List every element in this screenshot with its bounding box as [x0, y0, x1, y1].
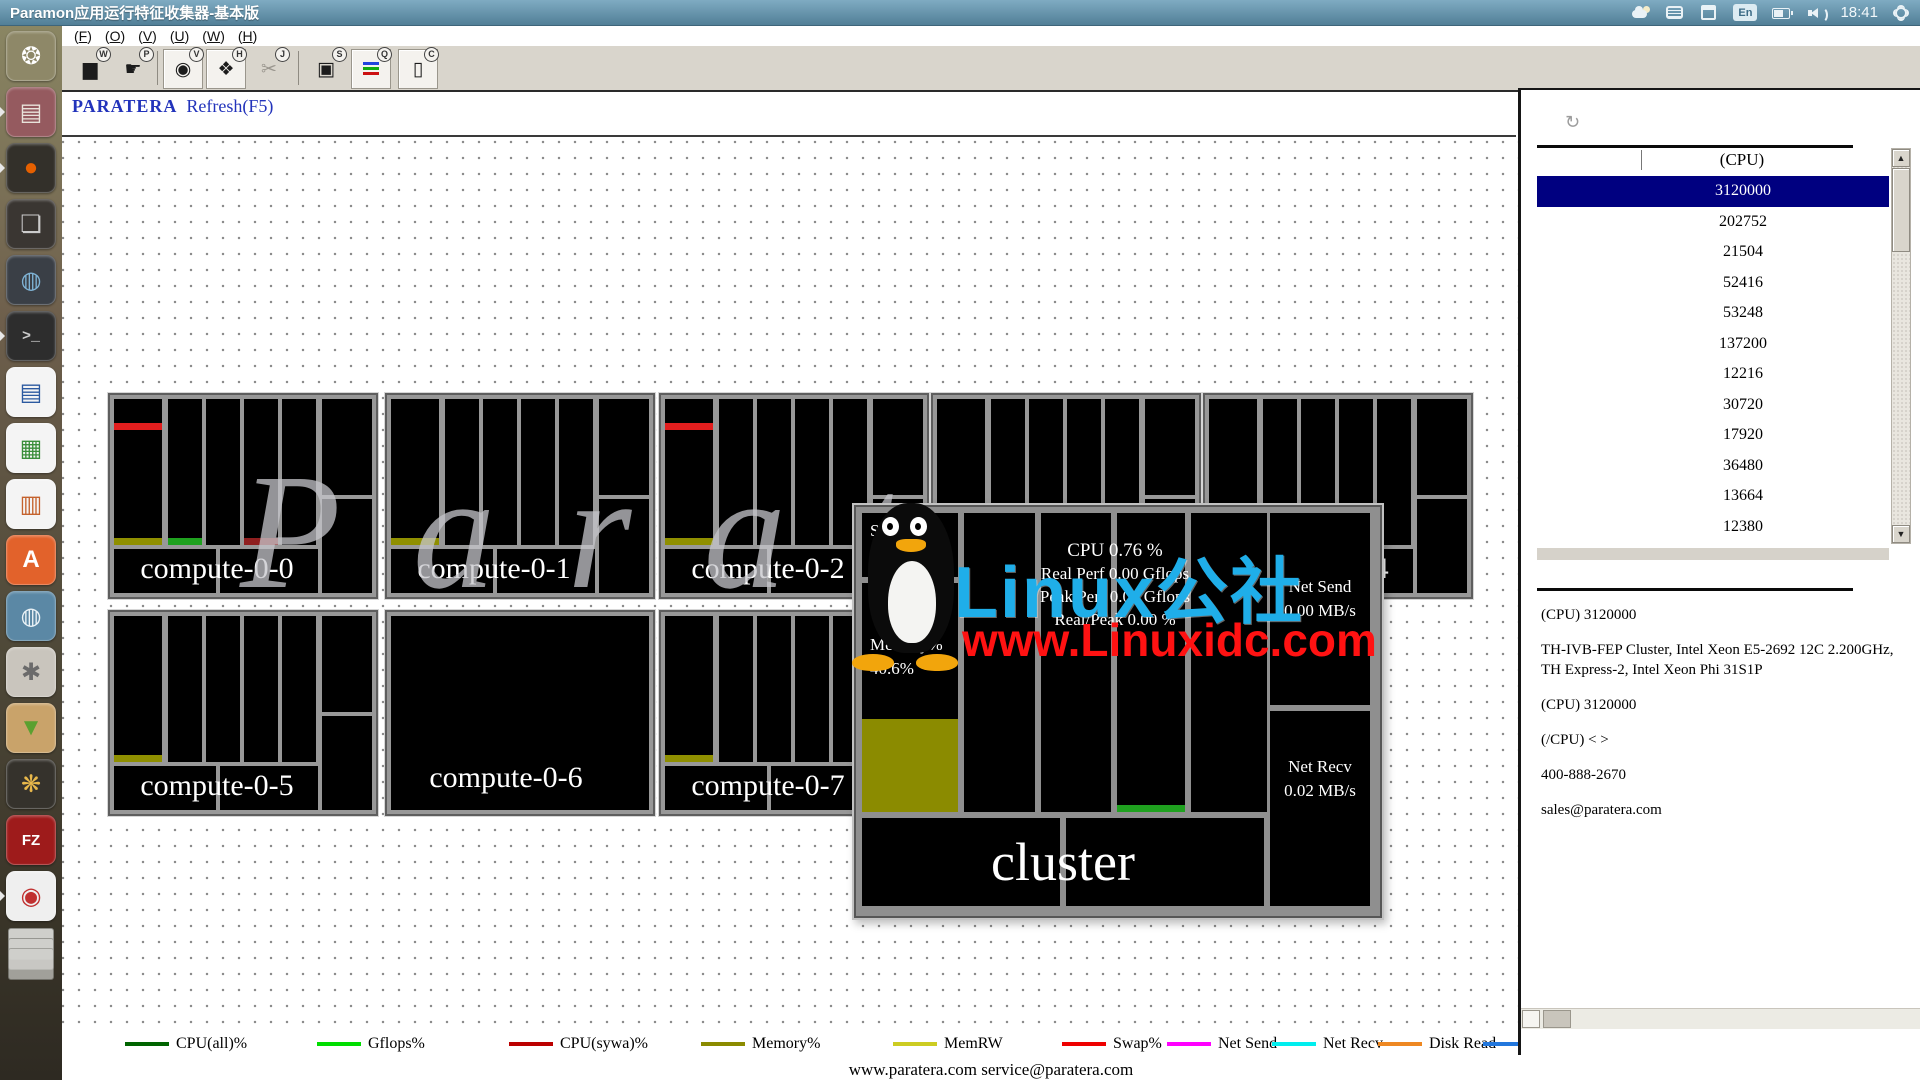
- brand-header: PARATERA Refresh(F5): [72, 96, 273, 117]
- legend-label: Net Recv: [1323, 1035, 1383, 1053]
- right-panel: ↻ (CPU) 31200002027522150452416532481372…: [1518, 88, 1920, 1055]
- tile-cell-left: [665, 616, 713, 762]
- clock[interactable]: 18:41: [1840, 4, 1878, 21]
- hscroll-thumb[interactable]: [1543, 1010, 1571, 1028]
- net-recv-value: 0.02 MB/s: [1270, 781, 1370, 801]
- shortcut-badge: S: [332, 47, 347, 62]
- toolbar-separator: [298, 51, 299, 85]
- window-stack[interactable]: [8, 928, 54, 988]
- legend-label: CPU(sywa)%: [560, 1035, 648, 1053]
- memory-strip: [114, 538, 162, 545]
- tile-cell-col: [244, 616, 278, 762]
- scroll-thumb[interactable]: [1892, 168, 1910, 252]
- tile-cell-bottom-a: [665, 766, 767, 810]
- cpu-list-row[interactable]: 13664: [1537, 481, 1889, 512]
- pointer-icon: ☛: [124, 58, 141, 81]
- legend-item: Disk Read: [1378, 1035, 1496, 1053]
- perf-line: Peak Perf 0.00 Gflops: [970, 585, 1260, 608]
- launcher-package-installer[interactable]: ▼: [6, 703, 56, 753]
- tile-cell-col: [559, 399, 593, 545]
- info-line: (CPU) 3120000: [1541, 605, 1896, 625]
- memory-strip: [665, 755, 713, 762]
- legend-swatch: [1167, 1042, 1211, 1046]
- tile-cell-col: [282, 616, 316, 762]
- tile-cell-left: [665, 399, 713, 545]
- legend-label: CPU(all)%: [176, 1035, 247, 1053]
- tile-cell-right-top: [1417, 399, 1467, 495]
- running-indicator: [0, 107, 10, 117]
- toolbar: ▆W☛P◉V❖H✂J▣SQ▯C: [62, 46, 1920, 92]
- launcher-document-viewer[interactable]: ◉: [6, 871, 56, 921]
- legend-label: Swap%: [1113, 1035, 1162, 1053]
- cpu-list-row[interactable]: 52416: [1537, 268, 1889, 299]
- tile-cell-col: [206, 616, 240, 762]
- launcher-software-updater[interactable]: ◍: [6, 591, 56, 641]
- filezilla-icon: FZ: [22, 832, 40, 849]
- launcher-libreoffice-writer[interactable]: ▤: [6, 367, 56, 417]
- legend-swatch: [317, 1042, 361, 1046]
- menu-item-f[interactable]: (F): [74, 28, 92, 44]
- ubuntu-dash-icon: ❂: [21, 42, 41, 71]
- net-send-label: Net Send: [1270, 577, 1370, 597]
- cpu-list-row[interactable]: 30720: [1537, 390, 1889, 421]
- menu-item-u[interactable]: (U): [170, 28, 189, 44]
- legend-swatch: [1062, 1042, 1106, 1046]
- launcher-chromium[interactable]: ◍: [6, 255, 56, 305]
- launcher-file-manager[interactable]: ▤: [6, 87, 56, 137]
- cut-tool-button: ✂J: [249, 49, 289, 89]
- perf-line: Real/Peak 0.00 %: [970, 608, 1260, 631]
- info-line: (/CPU) < >: [1541, 730, 1896, 750]
- cpu-list-row[interactable]: 21504: [1537, 237, 1889, 268]
- net-recv-label: Net Recv: [1270, 757, 1370, 777]
- divider: [1537, 145, 1853, 148]
- memory-strip: [391, 538, 439, 545]
- info-line: (CPU) 3120000: [1541, 695, 1896, 715]
- shortcut-badge: H: [232, 47, 247, 62]
- legend-item: Net Send: [1167, 1035, 1277, 1053]
- node-tile-compute-0-0[interactable]: compute-0-0: [108, 393, 378, 599]
- swap-value: 0.0 %: [870, 545, 910, 565]
- legend-list-icon: [363, 62, 379, 76]
- tile-cell-col: [795, 399, 829, 545]
- legend-list-tool-button[interactable]: Q: [351, 49, 391, 89]
- cpu-sywa-strip: [665, 423, 713, 430]
- clipboard-icon: ▯: [413, 58, 423, 81]
- clipboard-tool-button[interactable]: ▯C: [398, 49, 438, 89]
- unity-launcher: ❂▤●❏◍>_▤▦▥A◍✱▼❋FZ◉: [0, 25, 62, 1080]
- toolbar-separator: [157, 51, 158, 85]
- net-send-value: 0.00 MB/s: [1270, 601, 1370, 621]
- desktop: Paramon应用运行特征收集器-基本版 En 18:41 ❂▤●❏◍>_▤▦▥…: [0, 0, 1920, 1080]
- tile-cell-col: [168, 399, 202, 545]
- software-updater-icon: ◍: [21, 602, 42, 631]
- shortcut-badge: W: [96, 47, 111, 62]
- tile-cell-right-bottom: [322, 499, 372, 593]
- panel-horizontal-scrollbar[interactable]: [1521, 1008, 1920, 1029]
- hscroll-button[interactable]: [1522, 1010, 1540, 1028]
- legend-item: Memory%: [701, 1035, 820, 1053]
- firefox-icon: ●: [24, 154, 39, 182]
- cpu-strip: [1117, 805, 1185, 812]
- battery-icon[interactable]: [1772, 5, 1791, 20]
- memory-value: 40.6%: [870, 659, 914, 679]
- system-settings-icon: ✱: [21, 658, 41, 687]
- legend-swatch: [125, 1042, 169, 1046]
- tile-cell-left: [391, 399, 439, 545]
- node-tile-compute-0-5[interactable]: compute-0-5: [108, 610, 378, 816]
- tag-tool-button[interactable]: ❖H: [206, 49, 246, 89]
- legend-swatch: [893, 1042, 937, 1046]
- memory-strip: [665, 538, 713, 545]
- record-icon: ◉: [175, 58, 192, 81]
- tile-cell-right-top: [1145, 399, 1195, 495]
- node-tile-compute-0-1[interactable]: compute-0-1: [385, 393, 655, 599]
- workspace-switcher-icon: ❏: [20, 210, 42, 239]
- tile-cell-bottom-b: [220, 766, 318, 810]
- tile-cell-bottom-a: [114, 766, 216, 810]
- snapshot-tool-button[interactable]: ▣S: [306, 49, 346, 89]
- info-line: sales@paratera.com: [1541, 800, 1896, 820]
- language-indicator[interactable]: En: [1733, 4, 1757, 21]
- legend-label: Memory%: [752, 1035, 820, 1053]
- running-indicator: [0, 891, 10, 901]
- tile-cell-col: [168, 616, 202, 762]
- window-title: Paramon应用运行特征收集器-基本版: [0, 2, 259, 23]
- scroll-down-button[interactable]: ▼: [1892, 525, 1910, 543]
- tile-cell-bottom-a: [665, 549, 767, 593]
- legend-swatch: [1378, 1042, 1422, 1046]
- cpu-list-row[interactable]: 53248: [1537, 298, 1889, 329]
- record-tool-button[interactable]: ◉V: [163, 49, 203, 89]
- cpu-list: 3120000202752215045241653248137200122163…: [1537, 176, 1889, 542]
- legend-item: MemRW: [893, 1035, 1003, 1053]
- volume-icon[interactable]: [1806, 5, 1825, 20]
- legend-label: Net Send: [1218, 1035, 1277, 1053]
- tile-cell-right-bottom: [599, 499, 649, 593]
- tile-cell-col: [757, 399, 791, 545]
- running-indicator: [0, 331, 10, 341]
- app-window: (F)(O)(V)(U)(W)(H) ▆W☛P◉V❖H✂J▣SQ▯C PARAT…: [62, 25, 1920, 1080]
- software-center-icon: A: [22, 546, 39, 574]
- node-tile-compute-0-6[interactable]: compute-0-6: [385, 610, 655, 816]
- menu-item-w[interactable]: (W): [202, 28, 225, 44]
- libreoffice-writer-icon: ▤: [20, 378, 43, 407]
- tile-cell-bottom-a: [391, 549, 493, 593]
- keyboard-icon[interactable]: [1665, 5, 1684, 20]
- launcher-system-settings[interactable]: ✱: [6, 647, 56, 697]
- legend-swatch: [1272, 1042, 1316, 1046]
- cpu-list-row[interactable]: 202752: [1537, 207, 1889, 238]
- cpu-list-row[interactable]: 17920: [1537, 420, 1889, 451]
- tile-cell-col: [445, 399, 479, 545]
- cluster-label: cluster: [862, 818, 1264, 906]
- list-column-header: (CPU): [1641, 150, 1842, 170]
- footer-contact: www.paratera.com service@paratera.com: [62, 1060, 1920, 1080]
- top-panel: Paramon应用运行特征收集器-基本版 En 18:41: [0, 0, 1920, 26]
- brand-label: PARATERA: [72, 96, 177, 116]
- info-line: TH-IVB-FEP Cluster, Intel Xeon E5-2692 1…: [1541, 640, 1896, 680]
- document-viewer-icon: ◉: [21, 882, 42, 911]
- launcher-terminal[interactable]: >_: [6, 311, 56, 361]
- list-vertical-scrollbar[interactable]: ▲ ▼: [1891, 148, 1911, 544]
- launcher-workspace-switcher[interactable]: ❏: [6, 199, 56, 249]
- node-info-block: (CPU) 3120000TH-IVB-FEP Cluster, Intel X…: [1541, 605, 1896, 835]
- system-tray: En 18:41: [1631, 0, 1912, 25]
- perf-line: Real Perf 0.00 Gflops: [970, 562, 1260, 585]
- overlay-cell-swap: Swap%0.0 %: [862, 513, 958, 577]
- cpu-sywa-strip: [114, 423, 162, 430]
- tile-cell-right-top: [322, 616, 372, 712]
- launcher-ubuntu-dash[interactable]: ❂: [6, 31, 56, 81]
- cpu-list-row[interactable]: 12216: [1537, 359, 1889, 390]
- metric-strip: [168, 538, 202, 545]
- overlay-cell-netrecv: Net Recv0.02 MB/s: [1270, 711, 1370, 906]
- cpu-usage-line: CPU 0.76 %: [970, 539, 1260, 562]
- launcher-libreoffice-impress[interactable]: ▥: [6, 479, 56, 529]
- legend-item: CPU(sywa)%: [509, 1035, 648, 1053]
- memory-fill-bar: [862, 719, 958, 812]
- chromium-icon: ◍: [21, 266, 42, 295]
- tile-cell: [391, 616, 649, 810]
- package-installer-icon: ▼: [19, 714, 43, 742]
- cut-icon: ✂: [261, 58, 277, 81]
- tile-cell-bottom-b: [497, 549, 595, 593]
- running-indicator: [0, 163, 10, 173]
- tile-cell-col: [719, 616, 753, 762]
- cpu-stats-block: CPU 0.76 %Real Perf 0.00 GflopsPeak Perf…: [970, 539, 1260, 631]
- chart-tool-button[interactable]: ▆W: [70, 49, 110, 89]
- pointer-tool-button[interactable]: ☛P: [113, 49, 153, 89]
- swap-label: Swap%: [870, 521, 922, 541]
- menu-bar: (F)(O)(V)(U)(W)(H): [62, 25, 1920, 46]
- shortcut-badge: C: [424, 47, 439, 62]
- metric-strip: [244, 538, 278, 545]
- calendar-icon[interactable]: [1699, 5, 1718, 20]
- cpu-list-row[interactable]: 137200: [1537, 329, 1889, 360]
- launcher-software-center[interactable]: A: [6, 535, 56, 585]
- libreoffice-calc-icon: ▦: [20, 434, 43, 463]
- legend-label: Gflops%: [368, 1035, 425, 1053]
- tile-cell-bottom-a: [114, 549, 216, 593]
- cpu-list-row[interactable]: 36480: [1537, 451, 1889, 482]
- tile-cell-col: [206, 399, 240, 545]
- shortcut-badge: V: [189, 47, 204, 62]
- cpu-list-row[interactable]: 12380: [1537, 512, 1889, 543]
- photo-manager-icon: ❋: [21, 770, 41, 799]
- weather-icon[interactable]: [1631, 5, 1650, 20]
- libreoffice-impress-icon: ▥: [20, 490, 43, 519]
- launcher-photo-manager[interactable]: ❋: [6, 759, 56, 809]
- tile-cell-col: [521, 399, 555, 545]
- menu-item-h[interactable]: (H): [238, 28, 257, 44]
- legend-item: Net Recv: [1272, 1035, 1383, 1053]
- legend-swatch: [701, 1042, 745, 1046]
- tile-cell-right-top: [873, 399, 923, 495]
- tile-cell-right-top: [322, 399, 372, 495]
- tile-cell-right-bottom: [322, 716, 372, 810]
- memory-strip: [114, 755, 162, 762]
- tile-cell-right-bottom: [1417, 499, 1467, 593]
- tag-icon: ❖: [217, 58, 234, 81]
- divider: [1537, 588, 1853, 591]
- shortcut-badge: Q: [377, 47, 392, 62]
- tile-cell-col: [719, 399, 753, 545]
- legend-item: Gflops%: [317, 1035, 425, 1053]
- launcher-libreoffice-calc[interactable]: ▦: [6, 423, 56, 473]
- launcher-firefox[interactable]: ●: [6, 143, 56, 193]
- cpu-list-row[interactable]: 3120000: [1537, 176, 1889, 207]
- legend-item: CPU(all)%: [125, 1035, 247, 1053]
- tile-cell-col: [795, 616, 829, 762]
- chart-icon: ▆: [83, 58, 98, 81]
- tile-cell-col: [282, 399, 316, 545]
- menu-item-o[interactable]: (O): [105, 28, 125, 44]
- legend-swatch: [509, 1042, 553, 1046]
- legend-item: Swap%: [1062, 1035, 1162, 1053]
- overlay-cell-memory: Memory%40.6%: [862, 583, 958, 812]
- tile-cell-bottom-b: [220, 549, 318, 593]
- shortcut-badge: J: [275, 47, 290, 62]
- legend-label: MemRW: [944, 1035, 1003, 1053]
- memory-label: Memory%: [870, 635, 943, 655]
- shortcut-badge: P: [139, 47, 154, 62]
- cluster-overlay-panel[interactable]: Swap%0.0 %Memory%40.6%Net Send0.00 MB/sN…: [852, 503, 1384, 920]
- list-bottom-strip: [1537, 548, 1889, 560]
- tile-cell-col: [244, 399, 278, 545]
- scroll-up-button[interactable]: ▲: [1892, 149, 1910, 167]
- launcher-filezilla[interactable]: FZ: [6, 815, 56, 865]
- overlay-cell-netsend: Net Send0.00 MB/s: [1270, 513, 1370, 705]
- file-manager-icon: ▤: [20, 98, 43, 127]
- snapshot-icon: ▣: [317, 58, 335, 81]
- tile-cell-left: [114, 616, 162, 762]
- refresh-icon[interactable]: ↻: [1565, 112, 1580, 133]
- tile-cell-left: [114, 399, 162, 545]
- tile-cell-right-top: [599, 399, 649, 495]
- terminal-icon: >_: [22, 328, 40, 345]
- refresh-link[interactable]: Refresh(F5): [186, 96, 273, 116]
- info-line: 400-888-2670: [1541, 765, 1896, 785]
- menu-item-v[interactable]: (V): [138, 28, 157, 44]
- session-gear-icon[interactable]: [1893, 5, 1912, 20]
- tile-cell-col: [483, 399, 517, 545]
- tile-cell-col: [757, 616, 791, 762]
